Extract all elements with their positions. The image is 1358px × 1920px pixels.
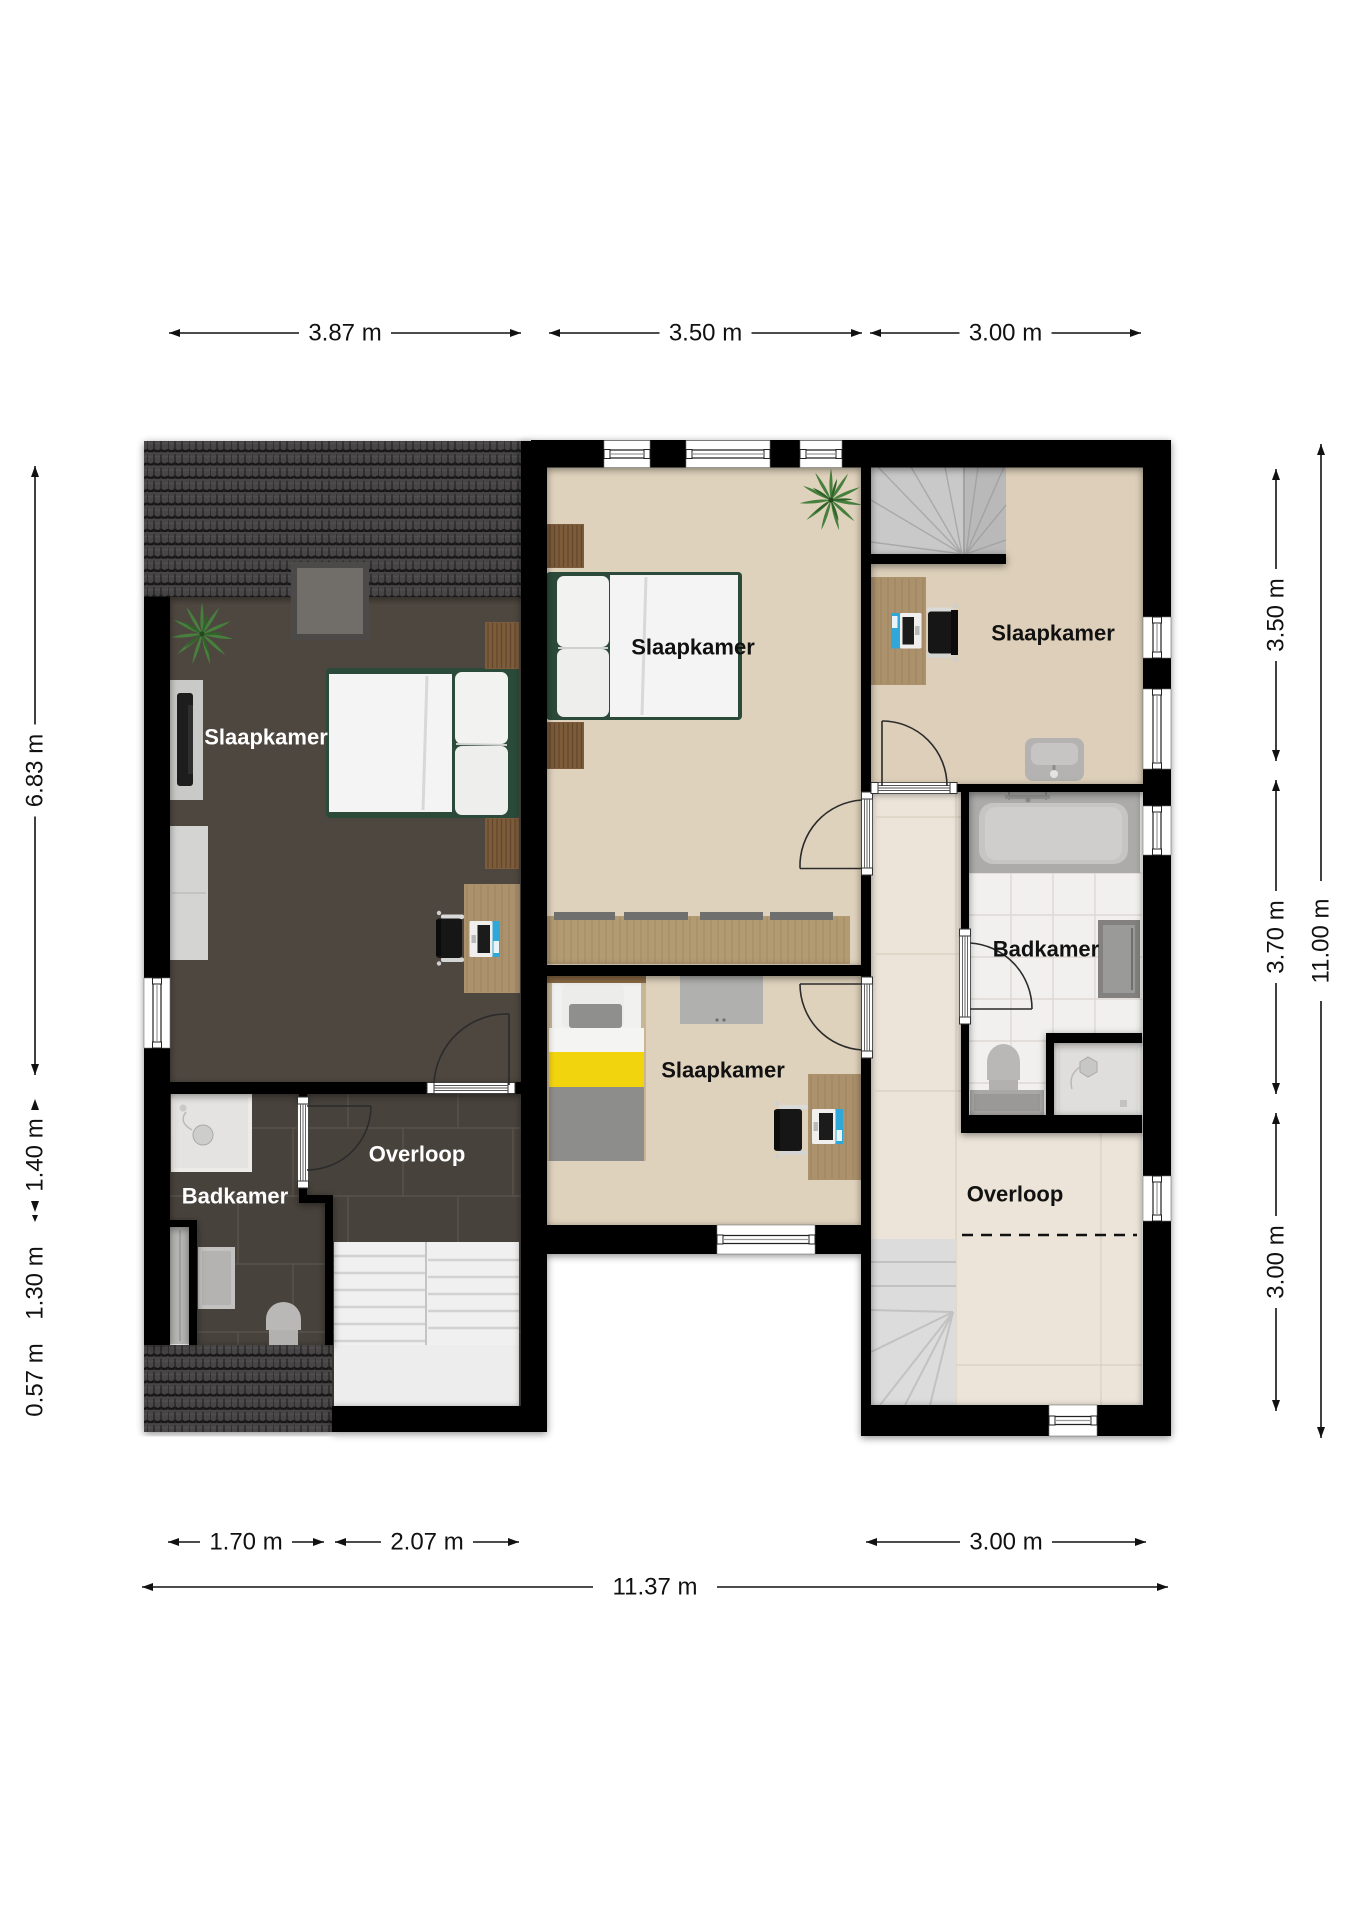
svg-text:Slaapkamer: Slaapkamer: [661, 1058, 785, 1083]
svg-text:Slaapkamer: Slaapkamer: [204, 725, 328, 750]
svg-text:6.83 m: 6.83 m: [22, 734, 49, 807]
svg-text:3.70 m: 3.70 m: [1263, 900, 1290, 973]
svg-text:1.40 m: 1.40 m: [22, 1118, 49, 1191]
svg-text:1.70 m: 1.70 m: [209, 1529, 282, 1556]
svg-text:3.00 m: 3.00 m: [969, 1529, 1042, 1556]
svg-text:3.87 m: 3.87 m: [308, 320, 381, 347]
svg-text:11.00 m: 11.00 m: [1308, 899, 1335, 984]
svg-text:Badkamer: Badkamer: [182, 1184, 289, 1209]
svg-text:1.30 m: 1.30 m: [22, 1246, 49, 1319]
svg-text:3.50 m: 3.50 m: [1263, 578, 1290, 651]
svg-text:Badkamer: Badkamer: [993, 937, 1100, 962]
svg-text:Slaapkamer: Slaapkamer: [991, 621, 1115, 646]
svg-text:Slaapkamer: Slaapkamer: [631, 635, 755, 660]
svg-text:Overloop: Overloop: [967, 1182, 1064, 1207]
svg-text:3.00 m: 3.00 m: [969, 320, 1042, 347]
svg-text:0.57 m: 0.57 m: [22, 1343, 49, 1416]
svg-text:Overloop: Overloop: [369, 1142, 466, 1167]
svg-text:3.00 m: 3.00 m: [1263, 1225, 1290, 1298]
svg-text:11.37 m: 11.37 m: [613, 1574, 698, 1601]
svg-text:2.07 m: 2.07 m: [390, 1529, 463, 1556]
svg-text:3.50 m: 3.50 m: [669, 320, 742, 347]
